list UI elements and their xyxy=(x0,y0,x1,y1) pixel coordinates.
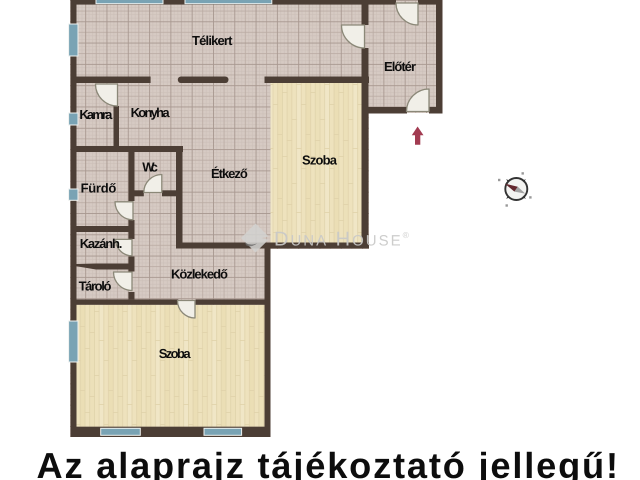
svg-text:Szoba: Szoba xyxy=(159,346,192,361)
svg-text:Télikert: Télikert xyxy=(192,33,233,48)
svg-text:Tároló: Tároló xyxy=(79,279,112,294)
svg-text:Szoba: Szoba xyxy=(302,153,338,168)
svg-text:Wc: Wc xyxy=(142,160,158,175)
svg-text:Fürdő: Fürdő xyxy=(81,181,117,196)
svg-text:Kazánh.: Kazánh. xyxy=(80,236,123,251)
svg-text:Előtér: Előtér xyxy=(384,59,416,74)
svg-text:Kamra: Kamra xyxy=(79,107,113,122)
svg-text:Közlekedő: Közlekedő xyxy=(171,267,228,282)
svg-text:DUNA HOUSE®: DUNA HOUSE® xyxy=(274,229,411,251)
svg-text:Étkező: Étkező xyxy=(211,166,248,181)
svg-text:Az alaprajz tájékoztató jelleg: Az alaprajz tájékoztató jellegű! xyxy=(37,445,619,480)
svg-text:Konyha: Konyha xyxy=(131,105,171,120)
